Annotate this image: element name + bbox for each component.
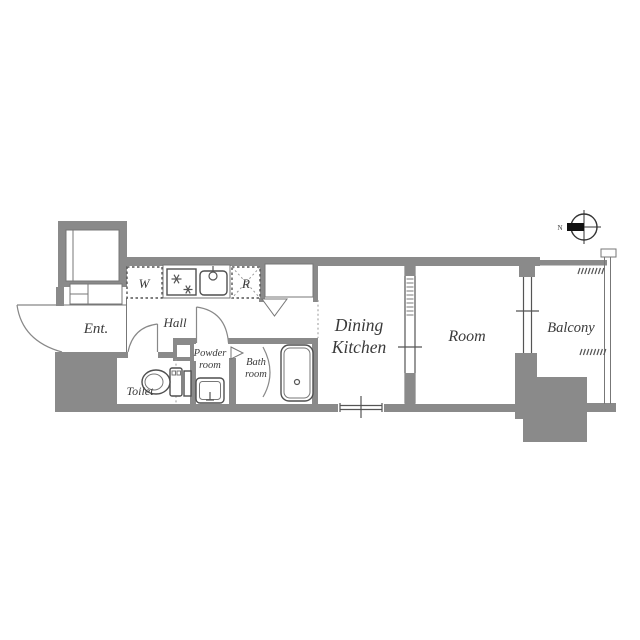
wall-segment-closet-right	[313, 262, 318, 302]
wall-segment-corner-block	[523, 377, 587, 442]
wall-segment-toilet-top-left	[64, 352, 128, 358]
closet	[262, 264, 313, 316]
wall-segment-window-top	[519, 266, 535, 277]
label-bath-1: Bath	[246, 357, 266, 368]
wall-segment-balcony-bottom	[583, 403, 616, 412]
label-dk-1: Dining	[334, 315, 384, 335]
wall-segment-bottom	[55, 404, 523, 412]
toilet-door-arc	[128, 324, 158, 352]
label-hall: Hall	[162, 315, 187, 330]
railing-top-cap	[601, 249, 616, 257]
bath-door-marker	[231, 347, 243, 359]
balcony-hatch-bottom	[580, 349, 606, 355]
label-dk-2: Kitchen	[331, 337, 387, 357]
wall-segment-toilet-top-right	[158, 352, 175, 358]
powder-corner-inset	[177, 345, 190, 357]
label-room: Room	[447, 328, 485, 345]
label-balcony: Balcony	[547, 320, 595, 336]
bath-room-area	[231, 345, 313, 401]
folding-door-marker	[262, 299, 287, 316]
wall-segment-below-entrance	[55, 352, 117, 405]
meter-box	[66, 230, 119, 281]
entrance-door-arc	[17, 305, 62, 352]
label-powder-1: Powder	[193, 348, 228, 359]
label-bath-2: room	[245, 369, 267, 380]
sliding-door-partition	[398, 266, 422, 404]
label-washer: W	[139, 276, 151, 291]
powder-door-arc	[197, 307, 229, 343]
wall-segment-balcony-top	[537, 260, 607, 266]
toilet-cabinet	[184, 371, 191, 396]
wall-segment-bath-top	[228, 338, 318, 344]
compass-icon: N	[557, 210, 601, 244]
floor-plan-page: N Ent. Hall W R Toilet Powder room Bath …	[0, 0, 640, 640]
powder-room-area	[196, 378, 224, 403]
closet-box	[265, 264, 313, 297]
floor-plan: N Ent. Hall W R Toilet Powder room Bath …	[0, 0, 640, 640]
partition-top-post	[405, 266, 416, 276]
label-powder-2: room	[199, 360, 221, 371]
bathtub-icon	[281, 345, 313, 401]
sink-icon	[200, 271, 227, 295]
wall-segment-bath-left	[229, 358, 236, 404]
compass-north-label: N	[557, 224, 562, 232]
label-fridge: R	[241, 276, 250, 291]
partition-panel-hatch	[407, 279, 414, 315]
partition-bottom-post	[405, 373, 416, 404]
balcony-hatch-top	[578, 268, 604, 274]
wall-segment-left-upper	[56, 287, 64, 306]
label-toilet: Toilet	[127, 384, 155, 398]
balcony-window	[516, 277, 539, 353]
stove-icon	[167, 269, 196, 295]
label-entrance: Ent.	[83, 321, 109, 337]
dk-window	[338, 396, 384, 418]
